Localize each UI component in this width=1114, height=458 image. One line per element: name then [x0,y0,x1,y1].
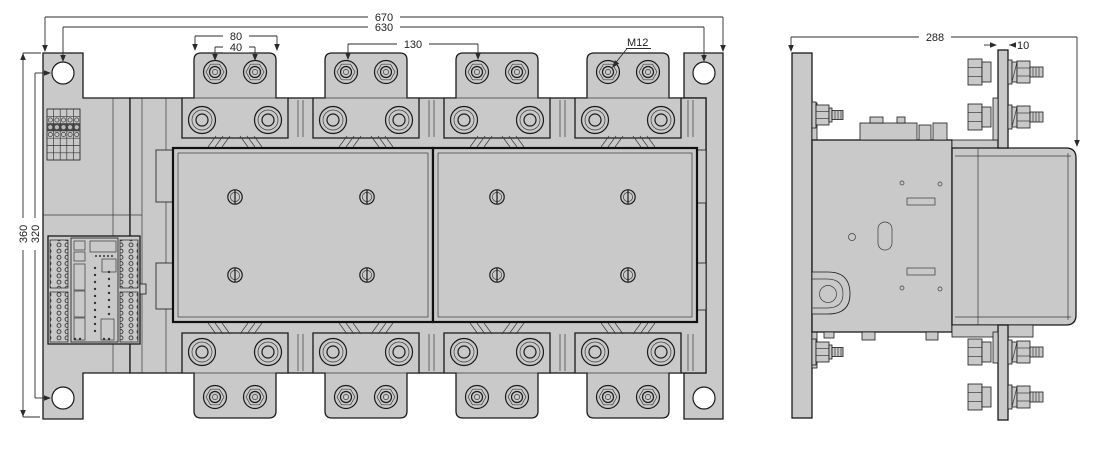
arc-chamber-covers [173,148,697,322]
module-connector-strip [120,240,138,288]
fixing-hole-bottom-right [693,387,715,409]
aux-screw-top [812,102,843,128]
arc-chute-housing [952,140,1076,337]
dim-label-360: 360 [18,225,30,243]
arc-cover-left [173,148,433,322]
dim-label-630: 630 [375,22,393,34]
terminal-tab-top [993,98,998,140]
control-module [48,236,146,344]
mounting-plate [792,53,812,418]
terminal-bottom-2 [313,333,419,418]
fixing-hole-bottom-left [52,387,74,409]
terminal-top-4 [575,53,681,138]
busbar-bottom-segment [998,325,1008,420]
panel-side-tab [697,150,706,203]
technical-drawing: 670 630 80 40 [0,0,1114,458]
terminal-bottom-1 [182,333,288,418]
side-view: 288 10 [788,32,1080,421]
module-connector-strip [50,292,68,342]
busbar-top-segment [998,50,1008,148]
side-body [812,117,952,340]
module-connector-strip [50,240,68,288]
dim-label-10: 10 [1017,40,1029,52]
dim-label-40: 40 [230,42,242,54]
fixing-hole-top-right [693,62,715,84]
front-view: 670 630 80 40 [18,12,726,420]
top-cover-detail [919,125,931,140]
thread-label: M12 [627,37,648,49]
arc-cover-right [433,148,697,322]
terminal-bottom-3 [444,333,550,418]
panel-side-tab [156,150,173,202]
drawing-canvas: 670 630 80 40 [0,0,1114,458]
dim-label-320: 320 [30,225,42,243]
dim-label-130: 130 [404,39,422,51]
module-connector-strip [120,292,138,342]
aux-terminal-block [47,109,80,160]
terminal-tab-bottom [993,332,998,363]
module-side-tab [140,284,146,294]
top-cover-detail [860,123,917,140]
aux-screw-bottom [812,339,843,365]
panel-side-tab [156,263,173,309]
panel-side-tab [697,263,706,310]
mounting-lug [812,272,850,314]
dim-label-288: 288 [926,32,944,44]
fixing-hole-top-left [52,62,74,84]
terminal-top-3 [444,53,550,138]
terminal-bottom-4 [575,333,681,418]
terminal-top-2 [313,53,419,138]
top-cover-detail [933,123,947,140]
terminal-top-1 [182,53,288,138]
